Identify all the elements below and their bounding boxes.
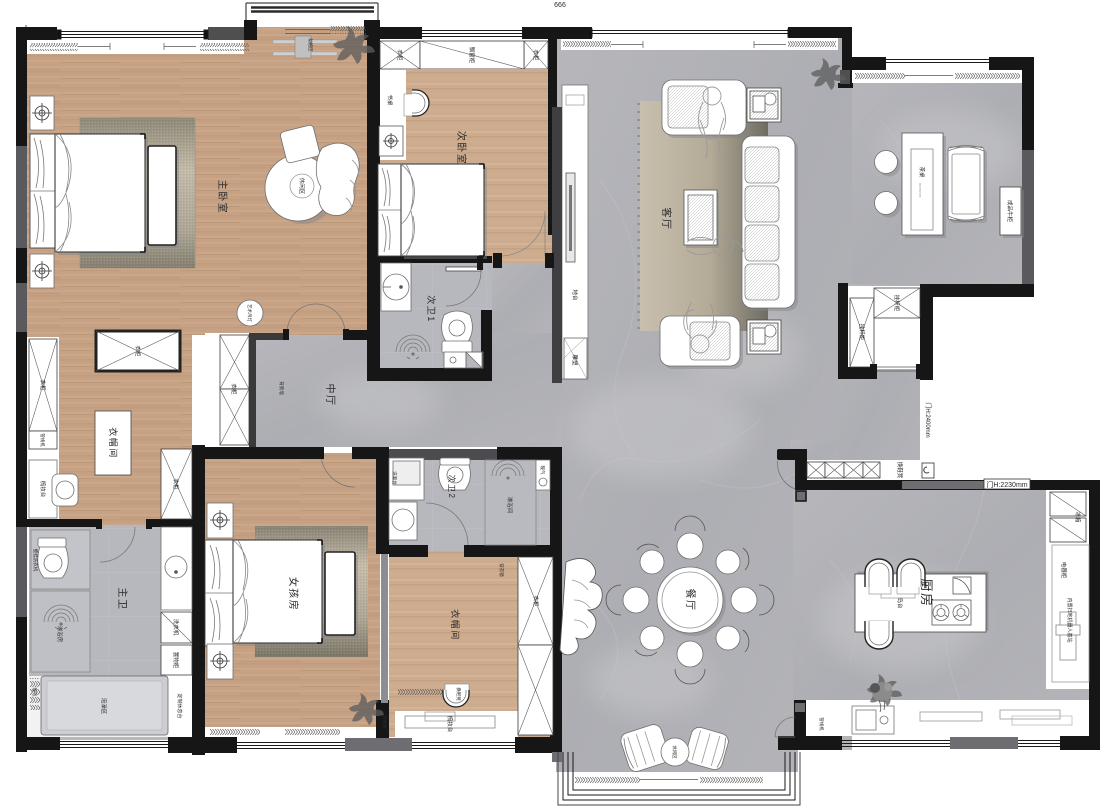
- svg-text:衣帽间: 衣帽间: [450, 609, 461, 641]
- svg-text:置物柜: 置物柜: [172, 652, 180, 669]
- svg-text:梳妆台: 梳妆台: [446, 716, 454, 733]
- svg-text:中厅: 中厅: [324, 384, 337, 407]
- svg-text:换鞋凳: 换鞋凳: [455, 687, 462, 701]
- svg-text:茶桌: 茶桌: [918, 166, 926, 178]
- svg-text:背景墙: 背景墙: [278, 381, 285, 395]
- svg-text:内置扫地机器人基站: 内置扫地机器人基站: [1066, 597, 1073, 642]
- svg-text:幼植区: 幼植区: [307, 38, 314, 52]
- svg-text:休闲区: 休闲区: [671, 745, 678, 759]
- svg-text:次卫1: 次卫1: [426, 295, 437, 323]
- svg-text:洗衣机: 洗衣机: [172, 619, 180, 636]
- svg-text:门H:2230mm: 门H:2230mm: [986, 480, 1027, 489]
- svg-text:书桌: 书桌: [386, 94, 394, 106]
- svg-text:次卫2: 次卫2: [447, 475, 457, 500]
- svg-text:客厅: 客厅: [660, 208, 673, 231]
- svg-text:壁挂洗衣机: 壁挂洗衣机: [32, 549, 39, 572]
- svg-text:主卧室: 主卧室: [216, 180, 229, 215]
- svg-text:淋浴房: 淋浴房: [56, 626, 64, 643]
- svg-text:女孩房: 女孩房: [287, 577, 300, 612]
- svg-text:门H:2400mm: 门H:2400mm: [924, 402, 932, 437]
- svg-text:岛台: 岛台: [896, 597, 904, 609]
- svg-text:主卫: 主卫: [116, 588, 128, 611]
- svg-text:飘窗柜: 飘窗柜: [468, 47, 476, 64]
- svg-text:冰箱: 冰箱: [1074, 511, 1082, 523]
- svg-text:电器柜: 电器柜: [1060, 562, 1068, 579]
- svg-text:淋浴间: 淋浴间: [506, 497, 514, 514]
- svg-text:挂杆柜: 挂杆柜: [893, 295, 901, 312]
- svg-text:衣柜: 衣柜: [39, 379, 47, 391]
- svg-text:定制休息台: 定制休息台: [176, 693, 183, 718]
- svg-text:管线机: 管线机: [381, 715, 388, 729]
- svg-text:餐厅: 餐厅: [684, 589, 697, 612]
- svg-text:管线机: 管线机: [818, 717, 825, 731]
- svg-text:衣柜: 衣柜: [172, 478, 180, 490]
- svg-text:换鞋凳: 换鞋凳: [896, 462, 904, 479]
- svg-text:雕塑: 雕塑: [571, 354, 579, 366]
- svg-text:666: 666: [554, 2, 566, 9]
- svg-text:泡澡区: 泡澡区: [100, 698, 108, 715]
- svg-text:休闲区: 休闲区: [298, 178, 306, 195]
- svg-text:衣柜: 衣柜: [396, 49, 404, 61]
- svg-text:挂杆柜: 挂杆柜: [858, 324, 866, 341]
- svg-text:衣柜: 衣柜: [230, 383, 238, 395]
- svg-text:穿衣镜: 穿衣镜: [498, 563, 505, 577]
- svg-text:次卧室: 次卧室: [455, 131, 468, 166]
- svg-text:梳妆台: 梳妆台: [39, 481, 47, 498]
- svg-text:管线机: 管线机: [39, 433, 46, 447]
- svg-text:暖气: 暖气: [31, 688, 38, 697]
- svg-text:地台: 地台: [571, 289, 579, 301]
- svg-text:厨房: 厨房: [919, 578, 934, 607]
- svg-text:衣柜: 衣柜: [134, 345, 142, 357]
- svg-text:衣帽间: 衣帽间: [108, 427, 119, 459]
- svg-text:成品牛柜: 成品牛柜: [1006, 200, 1014, 223]
- svg-text:艺术吊灯: 艺术吊灯: [246, 304, 253, 322]
- svg-text:衣柜: 衣柜: [532, 595, 540, 607]
- svg-text:洗漱台: 洗漱台: [391, 471, 398, 485]
- svg-text:暖气: 暖气: [539, 466, 546, 475]
- svg-text:衣柜: 衣柜: [532, 49, 540, 61]
- svg-text:○○○○○○: ○○○○○○: [918, 183, 923, 198]
